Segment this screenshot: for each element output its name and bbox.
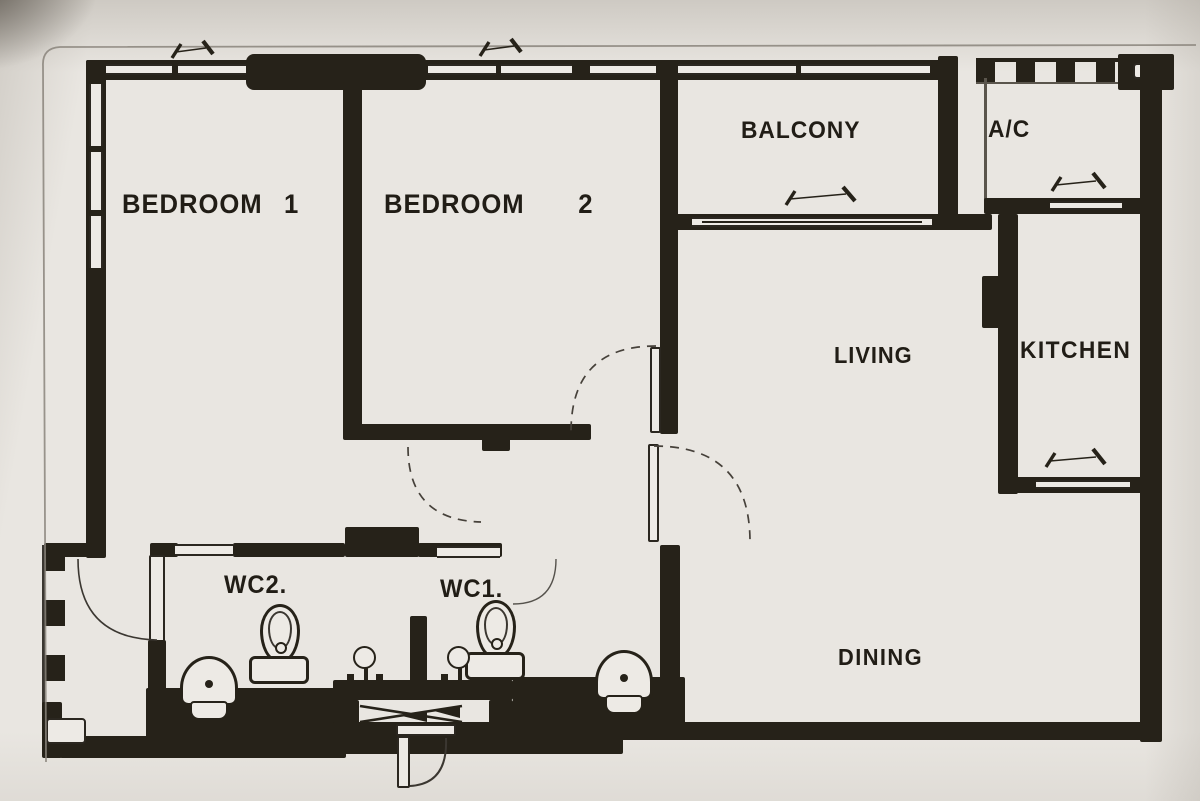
swing-arrow-top-mid xyxy=(480,39,521,56)
room-label-bedroom2: BEDROOM 2 xyxy=(384,189,594,220)
door-arc-hall-dining xyxy=(654,446,750,542)
access-arrow-ac xyxy=(1052,173,1105,191)
swing-arrow-top-left xyxy=(172,41,213,58)
scan-border xyxy=(43,45,1196,762)
door-arc-hall-living xyxy=(571,346,656,432)
room-label-ac: A/C xyxy=(988,116,1030,144)
door-arc-entrance-outer xyxy=(410,738,446,786)
room-label-dining: DINING xyxy=(838,644,923,671)
room-label-bedroom1: BEDROOM 1 xyxy=(122,189,299,220)
access-arrow-kitchen xyxy=(1046,449,1105,467)
room-label-kitchen: KITCHEN xyxy=(1020,337,1131,365)
room-label-wc2: WC2. xyxy=(224,571,287,600)
room-label-living: LIVING xyxy=(834,342,913,369)
door-arc-bedroom2 xyxy=(408,447,481,522)
slide-arrow-balcony xyxy=(786,187,855,205)
room-label-wc1: WC1. xyxy=(440,575,503,604)
door-arc-service xyxy=(78,559,157,640)
door-arc-wc1 xyxy=(513,559,556,604)
floor-plan-scan: BEDROOM 1 BEDROOM 2 BALCONY A/C LIVING K… xyxy=(0,0,1200,801)
room-label-balcony: BALCONY xyxy=(741,117,860,145)
